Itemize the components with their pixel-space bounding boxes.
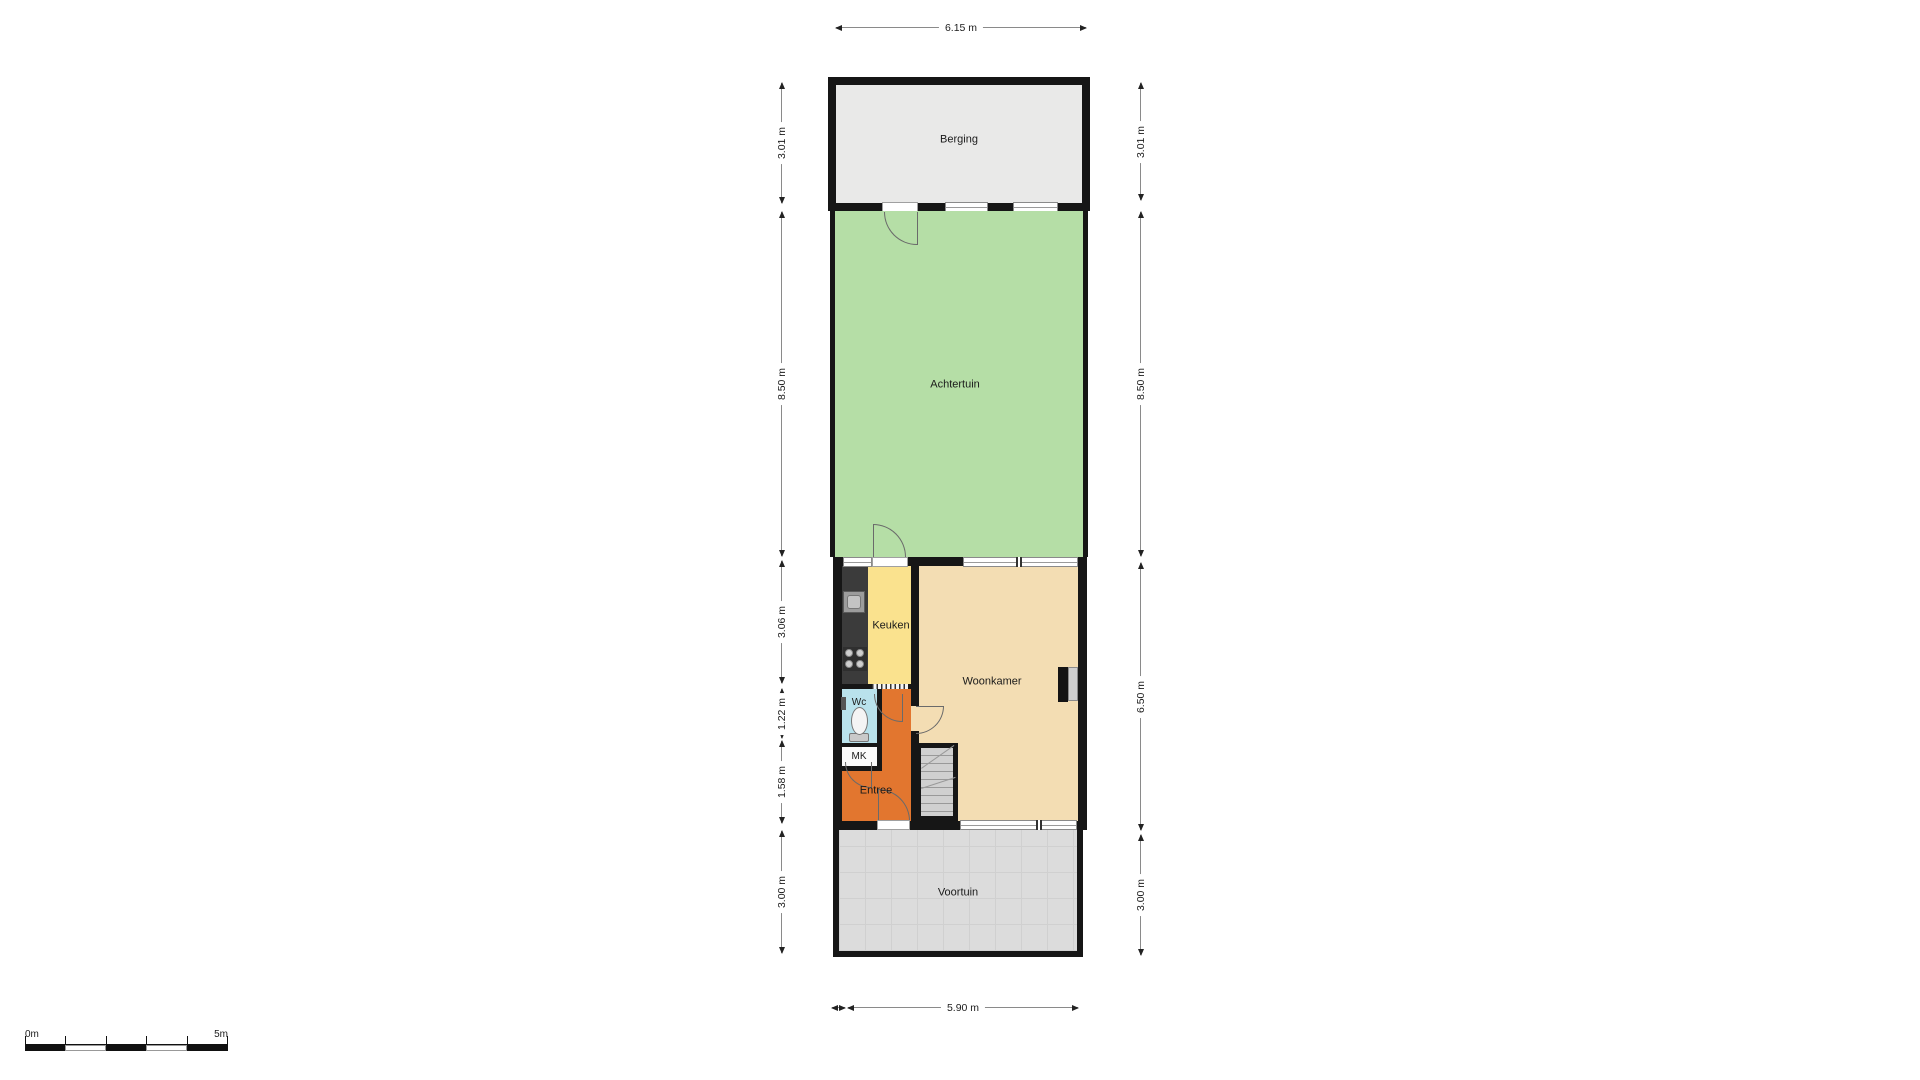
dim-left-keuken: 3.06 m	[781, 561, 782, 683]
scale-end-label: 5m	[214, 1030, 228, 1040]
arrow-up-icon	[1138, 211, 1144, 218]
keuken-garden-door-opening	[872, 557, 908, 567]
scale-tick	[65, 1036, 66, 1045]
dim-label: 3.01 m	[1135, 120, 1146, 162]
arrow-down-icon	[1138, 550, 1144, 557]
dim-right-achtertuin: 8.50 m	[1140, 212, 1141, 556]
scale-tick	[25, 1036, 26, 1045]
arrow-down-icon	[779, 817, 785, 824]
room-label-mk: MK	[852, 752, 867, 762]
scale-segment	[25, 1045, 65, 1051]
dim-left-entree: 1.58 m	[781, 741, 782, 823]
dim-left-wc: 1.22 m	[781, 689, 782, 738]
scale-tick	[227, 1036, 228, 1045]
arrow-down-icon	[779, 197, 785, 204]
burner-icon	[845, 649, 853, 657]
dim-label: 3.01 m	[776, 122, 787, 164]
arrow-right-icon	[839, 1005, 846, 1011]
window-mullion	[1036, 820, 1042, 830]
keuken-entree-threshold	[872, 684, 908, 689]
front-door-opening	[877, 820, 910, 830]
keuken-window	[843, 557, 872, 567]
dim-left-achtertuin: 8.50 m	[781, 212, 782, 556]
achtertuin-fence-left	[830, 211, 835, 557]
dim-label: 8.50 m	[776, 363, 787, 405]
scale-segment	[65, 1045, 106, 1051]
dim-bottom: 5.90 m	[848, 1007, 1078, 1008]
toilet-icon	[851, 707, 868, 735]
burner-icon	[856, 649, 864, 657]
dim-label: 8.50 m	[1135, 363, 1146, 405]
wc-door-leaf	[902, 694, 903, 722]
dim-top-label: 6.15 m	[939, 22, 983, 33]
dim-label: 3.00 m	[1135, 874, 1146, 916]
arrow-down-icon	[1138, 194, 1144, 201]
dim-label: 3.06 m	[776, 601, 787, 643]
arrow-up-icon	[779, 560, 785, 567]
dim-right-voortuin: 3.00 m	[1140, 835, 1141, 955]
wc-fixture-icon	[841, 697, 846, 710]
room-label-voortuin: Voortuin	[938, 888, 978, 899]
arrow-right-icon	[1080, 25, 1087, 31]
chimney-icon	[1058, 667, 1068, 702]
arrow-down-icon	[1138, 824, 1144, 831]
arrow-up-icon	[1138, 562, 1144, 569]
arrow-down-icon	[779, 947, 785, 954]
arrow-left-icon	[847, 1005, 854, 1011]
burner-icon	[856, 660, 864, 668]
arrow-up-icon	[1138, 82, 1144, 89]
dim-left-voortuin: 3.00 m	[781, 831, 782, 953]
scale-tick	[187, 1036, 188, 1045]
room-label-wc: Wc	[852, 698, 866, 708]
burner-icon	[845, 660, 853, 668]
chimney-hearth-icon	[1068, 667, 1078, 701]
scale-start-label: 0m	[25, 1030, 39, 1040]
dim-right-berging: 3.01 m	[1140, 83, 1141, 200]
dim-bottom-offset	[832, 1007, 845, 1008]
scale-segment	[106, 1045, 146, 1051]
scale-tick	[146, 1036, 147, 1045]
dim-right-house: 6.50 m	[1140, 563, 1141, 830]
dim-label: 1.22 m	[776, 692, 787, 734]
room-label-keuken: Keuken	[872, 621, 909, 632]
achtertuin-fence-right	[1083, 211, 1088, 557]
sink-basin-icon	[847, 595, 861, 609]
arrow-up-icon	[779, 830, 785, 837]
dim-label: 1.58 m	[776, 761, 787, 803]
arrow-up-icon	[779, 740, 785, 747]
scale-segment	[146, 1045, 187, 1051]
floor-plan: 6.15 m Berging Achtertuin	[0, 0, 1920, 1080]
arrow-down-icon	[1138, 949, 1144, 956]
arrow-down-icon	[779, 677, 785, 684]
arrow-left-icon	[831, 1005, 838, 1011]
berging-door-leaf	[917, 212, 918, 245]
arrow-up-icon	[779, 211, 785, 218]
dim-left-berging: 3.01 m	[781, 83, 782, 203]
arrow-down-icon	[779, 550, 785, 557]
room-label-woonkamer: Woonkamer	[962, 677, 1021, 688]
arrow-left-icon	[835, 25, 842, 31]
arrow-up-icon	[1138, 834, 1144, 841]
room-label-entree: Entree	[860, 786, 892, 797]
room-label-berging: Berging	[940, 135, 978, 146]
dim-top: 6.15 m	[836, 27, 1086, 28]
window-mullion	[1016, 557, 1022, 567]
arrow-right-icon	[1072, 1005, 1079, 1011]
dim-bottom-label: 5.90 m	[941, 1002, 985, 1013]
scale-tick	[106, 1036, 107, 1045]
arrow-up-icon	[779, 82, 785, 89]
scale-segment	[187, 1045, 228, 1051]
dim-label: 3.00 m	[776, 871, 787, 913]
woonkamer-window-front	[960, 820, 1077, 830]
dim-label: 6.50 m	[1135, 675, 1146, 717]
room-label-achtertuin: Achtertuin	[930, 380, 980, 391]
